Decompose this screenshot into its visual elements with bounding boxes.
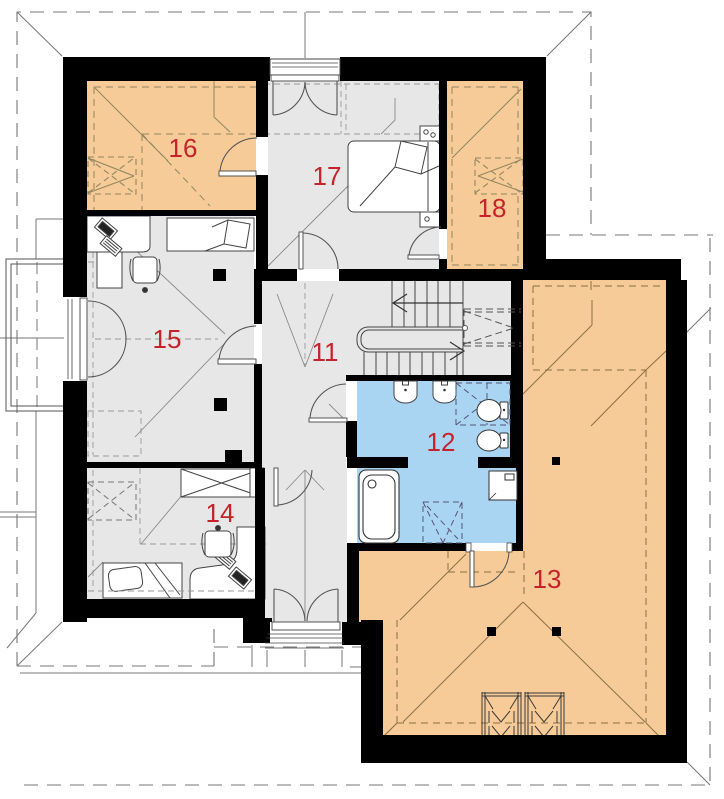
svg-text:13: 13 [533, 564, 562, 594]
svg-text:17: 17 [313, 161, 342, 191]
svg-text:11: 11 [312, 337, 339, 367]
svg-text:15: 15 [153, 324, 182, 354]
svg-text:18: 18 [478, 193, 507, 223]
svg-text:14: 14 [206, 498, 235, 528]
svg-text:12: 12 [427, 427, 456, 457]
svg-text:16: 16 [169, 133, 198, 163]
